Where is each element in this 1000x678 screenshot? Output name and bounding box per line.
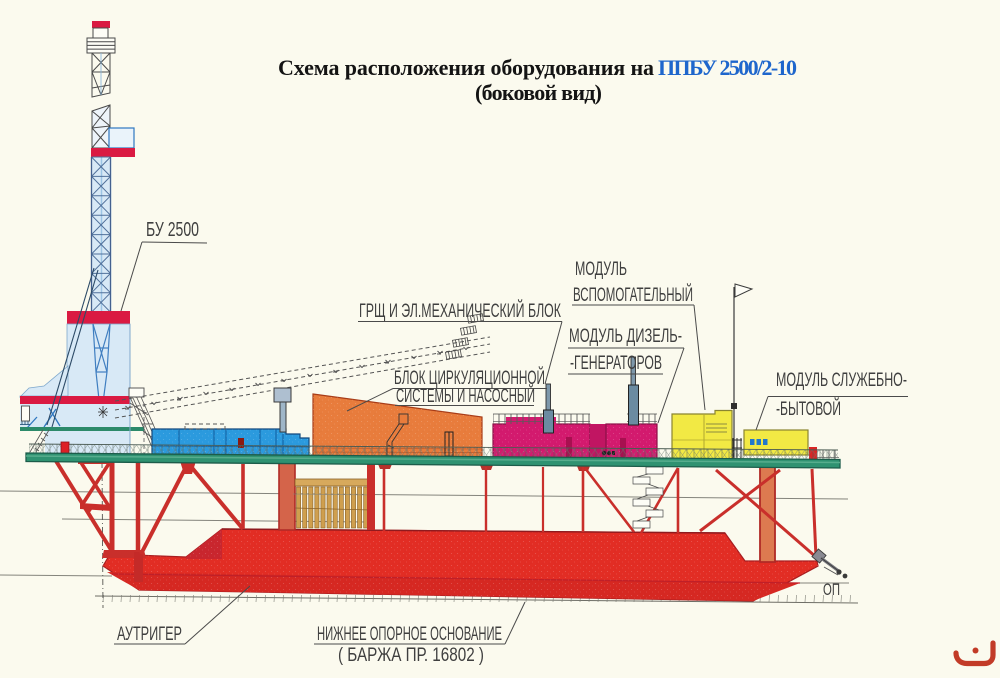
svg-text:-ГЕНЕРАТОРОВ: -ГЕНЕРАТОРОВ bbox=[570, 353, 662, 374]
svg-text:(боковой вид): (боковой вид) bbox=[475, 80, 602, 105]
svg-text:-БЫТОВОЙ: -БЫТОВОЙ bbox=[776, 398, 841, 420]
svg-text:МОДУЛЬ СЛУЖЕБНО-: МОДУЛЬ СЛУЖЕБНО- bbox=[776, 370, 907, 391]
svg-text:МОДУЛЬ ДИЗЕЛЬ-: МОДУЛЬ ДИЗЕЛЬ- bbox=[569, 326, 682, 347]
svg-text:ОП: ОП bbox=[823, 580, 840, 599]
svg-text:ППБУ 2500/2-10: ППБУ 2500/2-10 bbox=[658, 55, 797, 80]
svg-text:ГРЩ И ЭЛ.МЕХАНИЧЕСКИЙ БЛОК: ГРЩ И ЭЛ.МЕХАНИЧЕСКИЙ БЛОК bbox=[359, 300, 561, 322]
svg-text:НИЖНЕЕ ОПОРНОЕ ОСНОВАНИЕ: НИЖНЕЕ ОПОРНОЕ ОСНОВАНИЕ bbox=[317, 624, 502, 645]
svg-text:Схема расположения оборудовани: Схема расположения оборудования на bbox=[278, 55, 654, 80]
svg-text:( БАРЖА ПР. 16802 ): ( БАРЖА ПР. 16802 ) bbox=[338, 645, 484, 666]
svg-text:ВСПОМОГАТЕЛЬНЫЙ: ВСПОМОГАТЕЛЬНЫЙ bbox=[573, 284, 693, 306]
svg-text:МОДУЛЬ: МОДУЛЬ bbox=[575, 259, 627, 280]
svg-text:АУТРИГЕР: АУТРИГЕР bbox=[117, 624, 182, 645]
svg-text:СИСТЕМЫ И НАСОСНЫЙ: СИСТЕМЫ И НАСОСНЫЙ bbox=[396, 385, 535, 407]
svg-text:БУ 2500: БУ 2500 bbox=[146, 219, 199, 241]
